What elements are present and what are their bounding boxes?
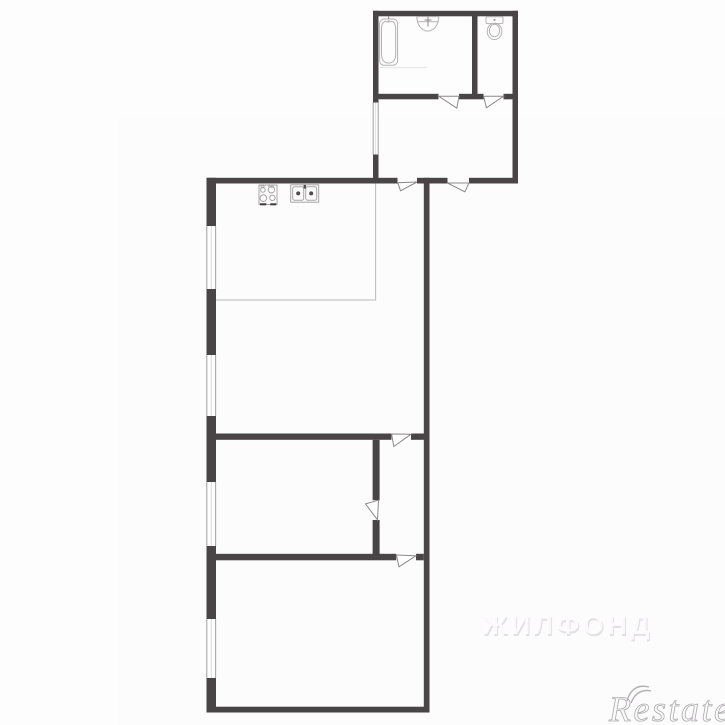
svg-text:Restate: Restate (608, 689, 725, 725)
svg-text:ЖИЛФОНД: ЖИЛФОНД (482, 610, 653, 640)
